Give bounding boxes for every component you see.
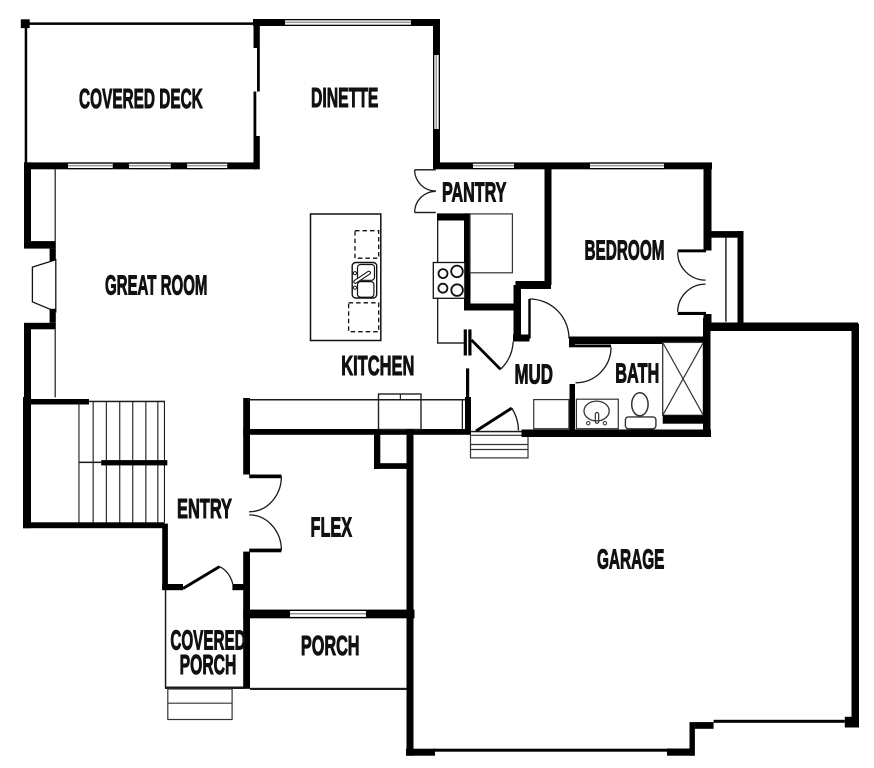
svg-text:GARAGE: GARAGE xyxy=(597,544,665,575)
svg-text:PORCH: PORCH xyxy=(301,630,360,661)
svg-text:ENTRY: ENTRY xyxy=(177,493,232,524)
svg-text:FLEX: FLEX xyxy=(311,512,353,543)
svg-text:COVERED DECK: COVERED DECK xyxy=(79,83,203,114)
svg-text:PORCH: PORCH xyxy=(180,649,237,680)
svg-text:PANTRY: PANTRY xyxy=(442,177,506,208)
svg-text:GREAT ROOM: GREAT ROOM xyxy=(105,269,208,300)
svg-text:BATH: BATH xyxy=(615,358,659,389)
svg-text:KITCHEN: KITCHEN xyxy=(341,350,414,381)
svg-text:MUD: MUD xyxy=(514,359,553,390)
svg-text:DINETTE: DINETTE xyxy=(311,82,378,113)
svg-text:BEDROOM: BEDROOM xyxy=(585,235,665,266)
